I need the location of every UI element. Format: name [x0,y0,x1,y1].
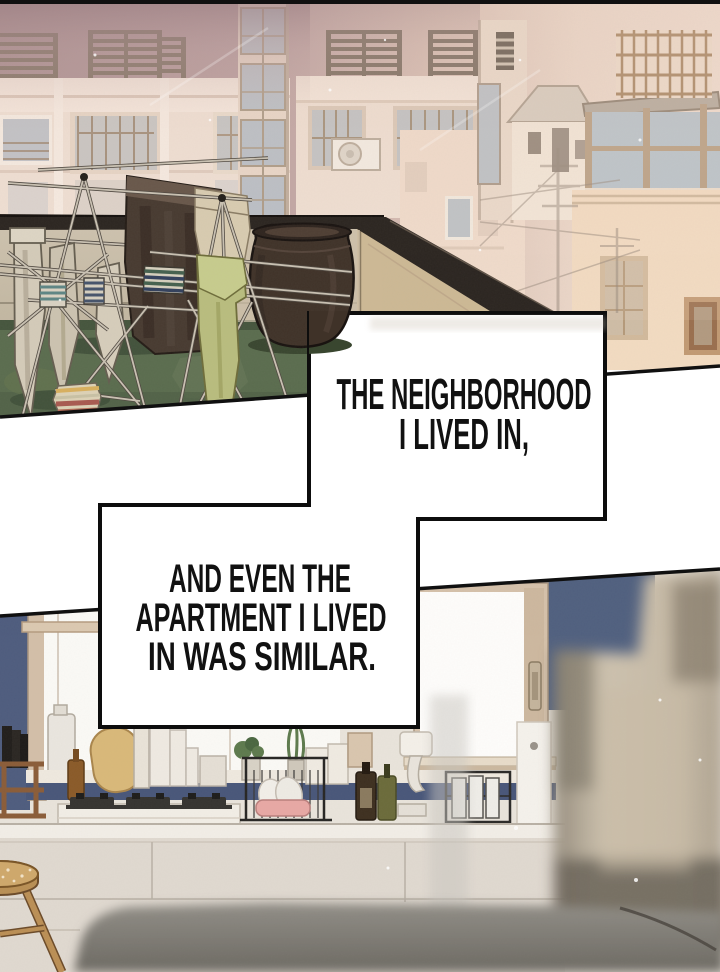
svg-text:I LIVED IN,: I LIVED IN, [399,410,529,459]
svg-text:AND EVEN THE: AND EVEN THE [169,557,351,601]
svg-text:APARTMENT I LIVED: APARTMENT I LIVED [136,596,387,640]
svg-text:IN WAS SIMILAR.: IN WAS SIMILAR. [148,635,376,679]
